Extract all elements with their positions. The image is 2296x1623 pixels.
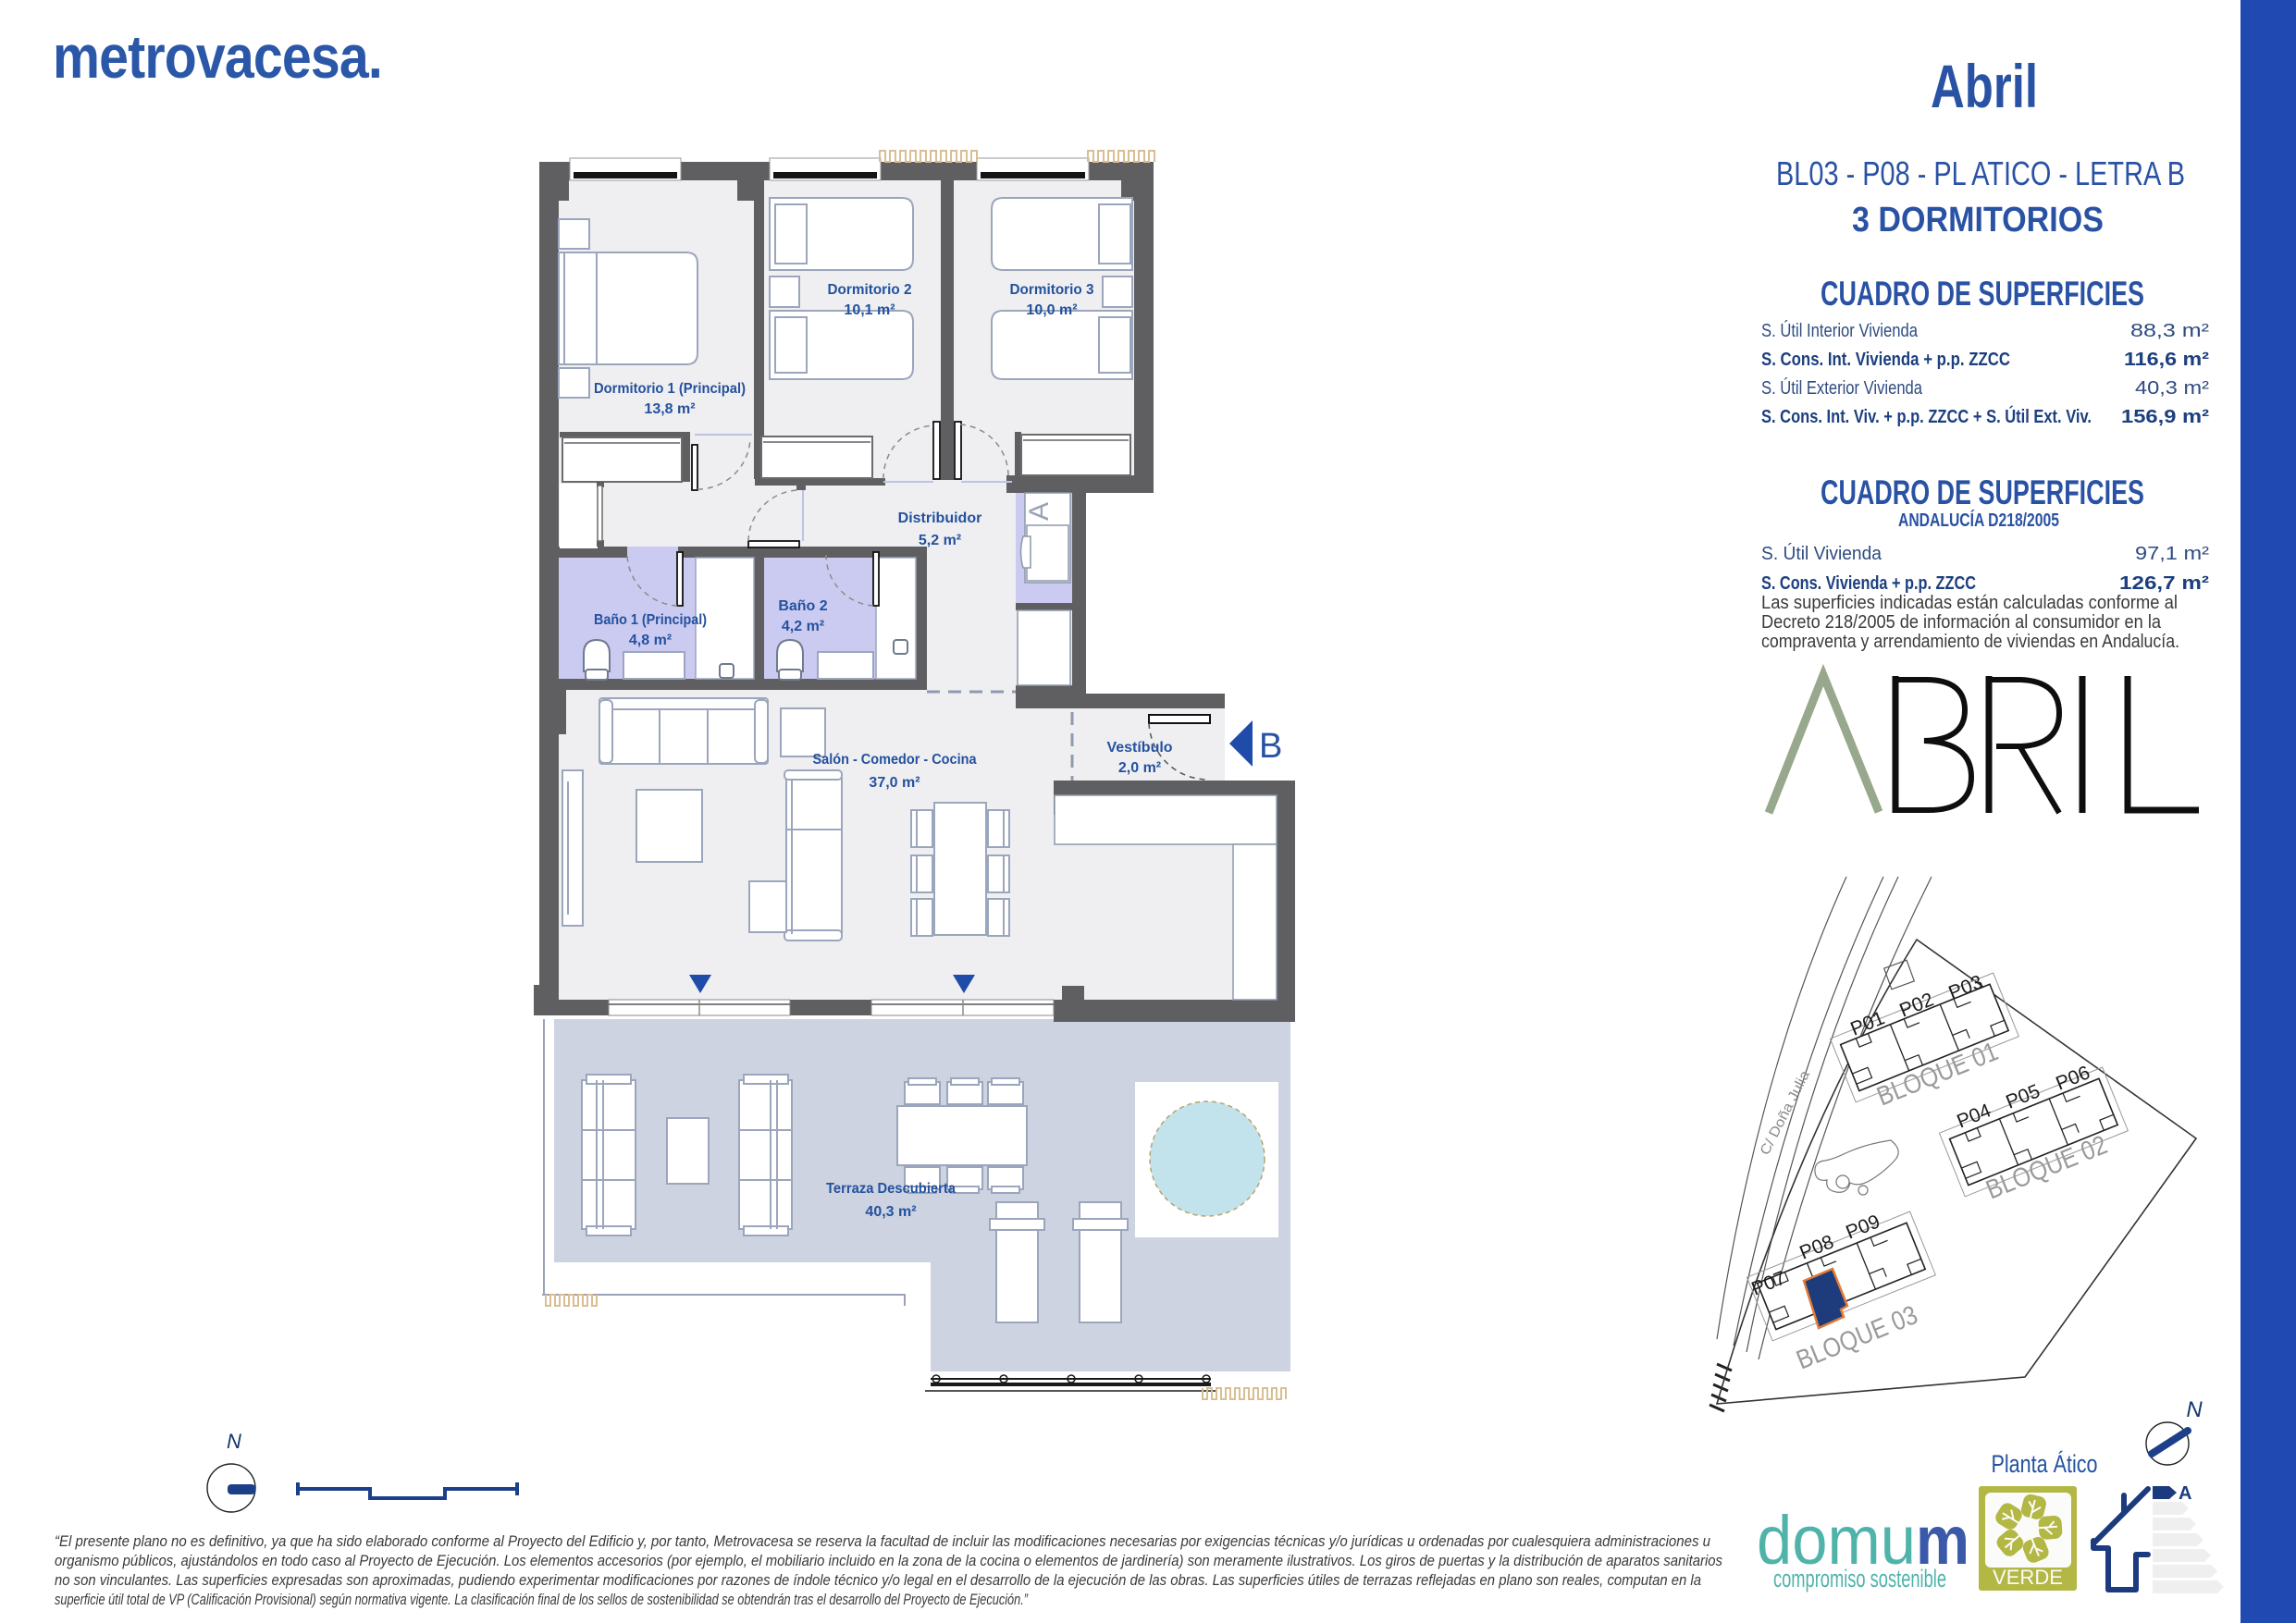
svg-text:Salón - Comedor - Cocina: Salón - Comedor - Cocina (813, 752, 977, 768)
svg-text:Dormitorio 2: Dormitorio 2 (828, 282, 912, 298)
svg-text:S. Útil Vivienda: S. Útil Vivienda (1761, 543, 1882, 564)
svg-text:40,3 m²: 40,3 m² (865, 1204, 916, 1220)
svg-text:Distribuidor: Distribuidor (898, 510, 982, 526)
svg-text:CUADRO DE SUPERFICIES: CUADRO DE SUPERFICIES (1821, 275, 2144, 313)
svg-text:Las superficies indicadas está: Las superficies indicadas están calculad… (1761, 593, 2178, 613)
svg-text:S. Útil Interior Vivienda: S. Útil Interior Vivienda (1761, 320, 1919, 341)
svg-text:10,0 m²: 10,0 m² (1026, 302, 1077, 318)
svg-text:A: A (2179, 1483, 2191, 1504)
svg-text:Dormitorio 1 (Principal): Dormitorio 1 (Principal) (594, 381, 746, 397)
svg-text:Baño 2: Baño 2 (778, 598, 827, 614)
svg-text:40,3 m²: 40,3 m² (2135, 378, 2209, 399)
svg-text:126,7 m²: 126,7 m² (2119, 573, 2209, 594)
svg-text:organismo públicos, ajustándol: organismo públicos, ajustándolos en todo… (55, 1552, 1722, 1569)
svg-text:Baño 1 (Principal): Baño 1 (Principal) (594, 612, 707, 628)
svg-text:CUADRO DE SUPERFICIES: CUADRO DE SUPERFICIES (1821, 473, 2144, 511)
svg-text:VERDE: VERDE (1993, 1566, 2063, 1589)
svg-text:Decreto 218/2005 de informació: Decreto 218/2005 de información al consu… (1761, 612, 2162, 633)
svg-text:N: N (227, 1430, 241, 1453)
svg-text:Terraza Descubierta: Terraza Descubierta (826, 1181, 956, 1197)
svg-text:S. Cons. Int. Vivienda + p.p.: S. Cons. Int. Vivienda + p.p. ZZCC (1761, 350, 2010, 370)
svg-text:37,0 m²: 37,0 m² (869, 775, 920, 791)
svg-text:S. Útil Exterior Vivienda: S. Útil Exterior Vivienda (1761, 377, 1923, 399)
svg-text:S. Cons. Vivienda + p.p. ZZCC: S. Cons. Vivienda + p.p. ZZCC (1761, 573, 1976, 594)
svg-text:N: N (2186, 1397, 2203, 1422)
svg-text:4,2 m²: 4,2 m² (782, 619, 824, 634)
svg-text:10,1 m²: 10,1 m² (844, 302, 895, 318)
svg-text:S. Cons. Int. Viv. + p.p. ZZCC: S. Cons. Int. Viv. + p.p. ZZCC + S. Útil… (1761, 405, 2092, 427)
svg-text:116,6 m²: 116,6 m² (2124, 350, 2209, 370)
svg-text:5,2 m²: 5,2 m² (919, 533, 961, 548)
svg-text:compraventa y arrendamiento de: compraventa y arrendamiento de viviendas… (1761, 632, 2179, 652)
svg-text:Dormitorio 3: Dormitorio 3 (1010, 282, 1094, 298)
svg-text:no son vinculantes. Las superf: no son vinculantes. Las superficies expr… (55, 1571, 1701, 1589)
svg-text:compromiso sostenible: compromiso sostenible (1773, 1565, 1946, 1592)
svg-text:ANDALUCÍA D218/2005: ANDALUCÍA D218/2005 (1898, 510, 2059, 531)
svg-text:156,9 m²: 156,9 m² (2121, 407, 2209, 427)
svg-text:Abril: Abril (1931, 52, 2038, 120)
svg-text:97,1 m²: 97,1 m² (2135, 544, 2209, 564)
svg-text:3 DORMITORIOS: 3 DORMITORIOS (1852, 201, 2104, 240)
svg-text:superficie útil total de VP (C: superficie útil total de VP (Calificació… (55, 1591, 1029, 1608)
svg-text:4,8 m²: 4,8 m² (629, 633, 672, 648)
svg-text:“El presente plano no es defin: “El presente plano no es definitivo, ya … (55, 1532, 1710, 1550)
svg-text:88,3 m²: 88,3 m² (2130, 321, 2209, 341)
svg-text:B: B (1259, 727, 1282, 766)
svg-text:2,0 m²: 2,0 m² (1118, 760, 1161, 776)
svg-text:BL03 - P08 - PL ATICO - LETRA: BL03 - P08 - PL ATICO - LETRA B (1776, 154, 2185, 192)
svg-text:13,8 m²: 13,8 m² (644, 401, 695, 417)
svg-text:A: A (1024, 502, 1055, 521)
svg-text:Planta Ático: Planta Ático (1992, 1450, 2098, 1478)
svg-text:Vestíbulo: Vestíbulo (1106, 740, 1172, 756)
svg-text:metrovacesa.: metrovacesa. (53, 22, 382, 91)
